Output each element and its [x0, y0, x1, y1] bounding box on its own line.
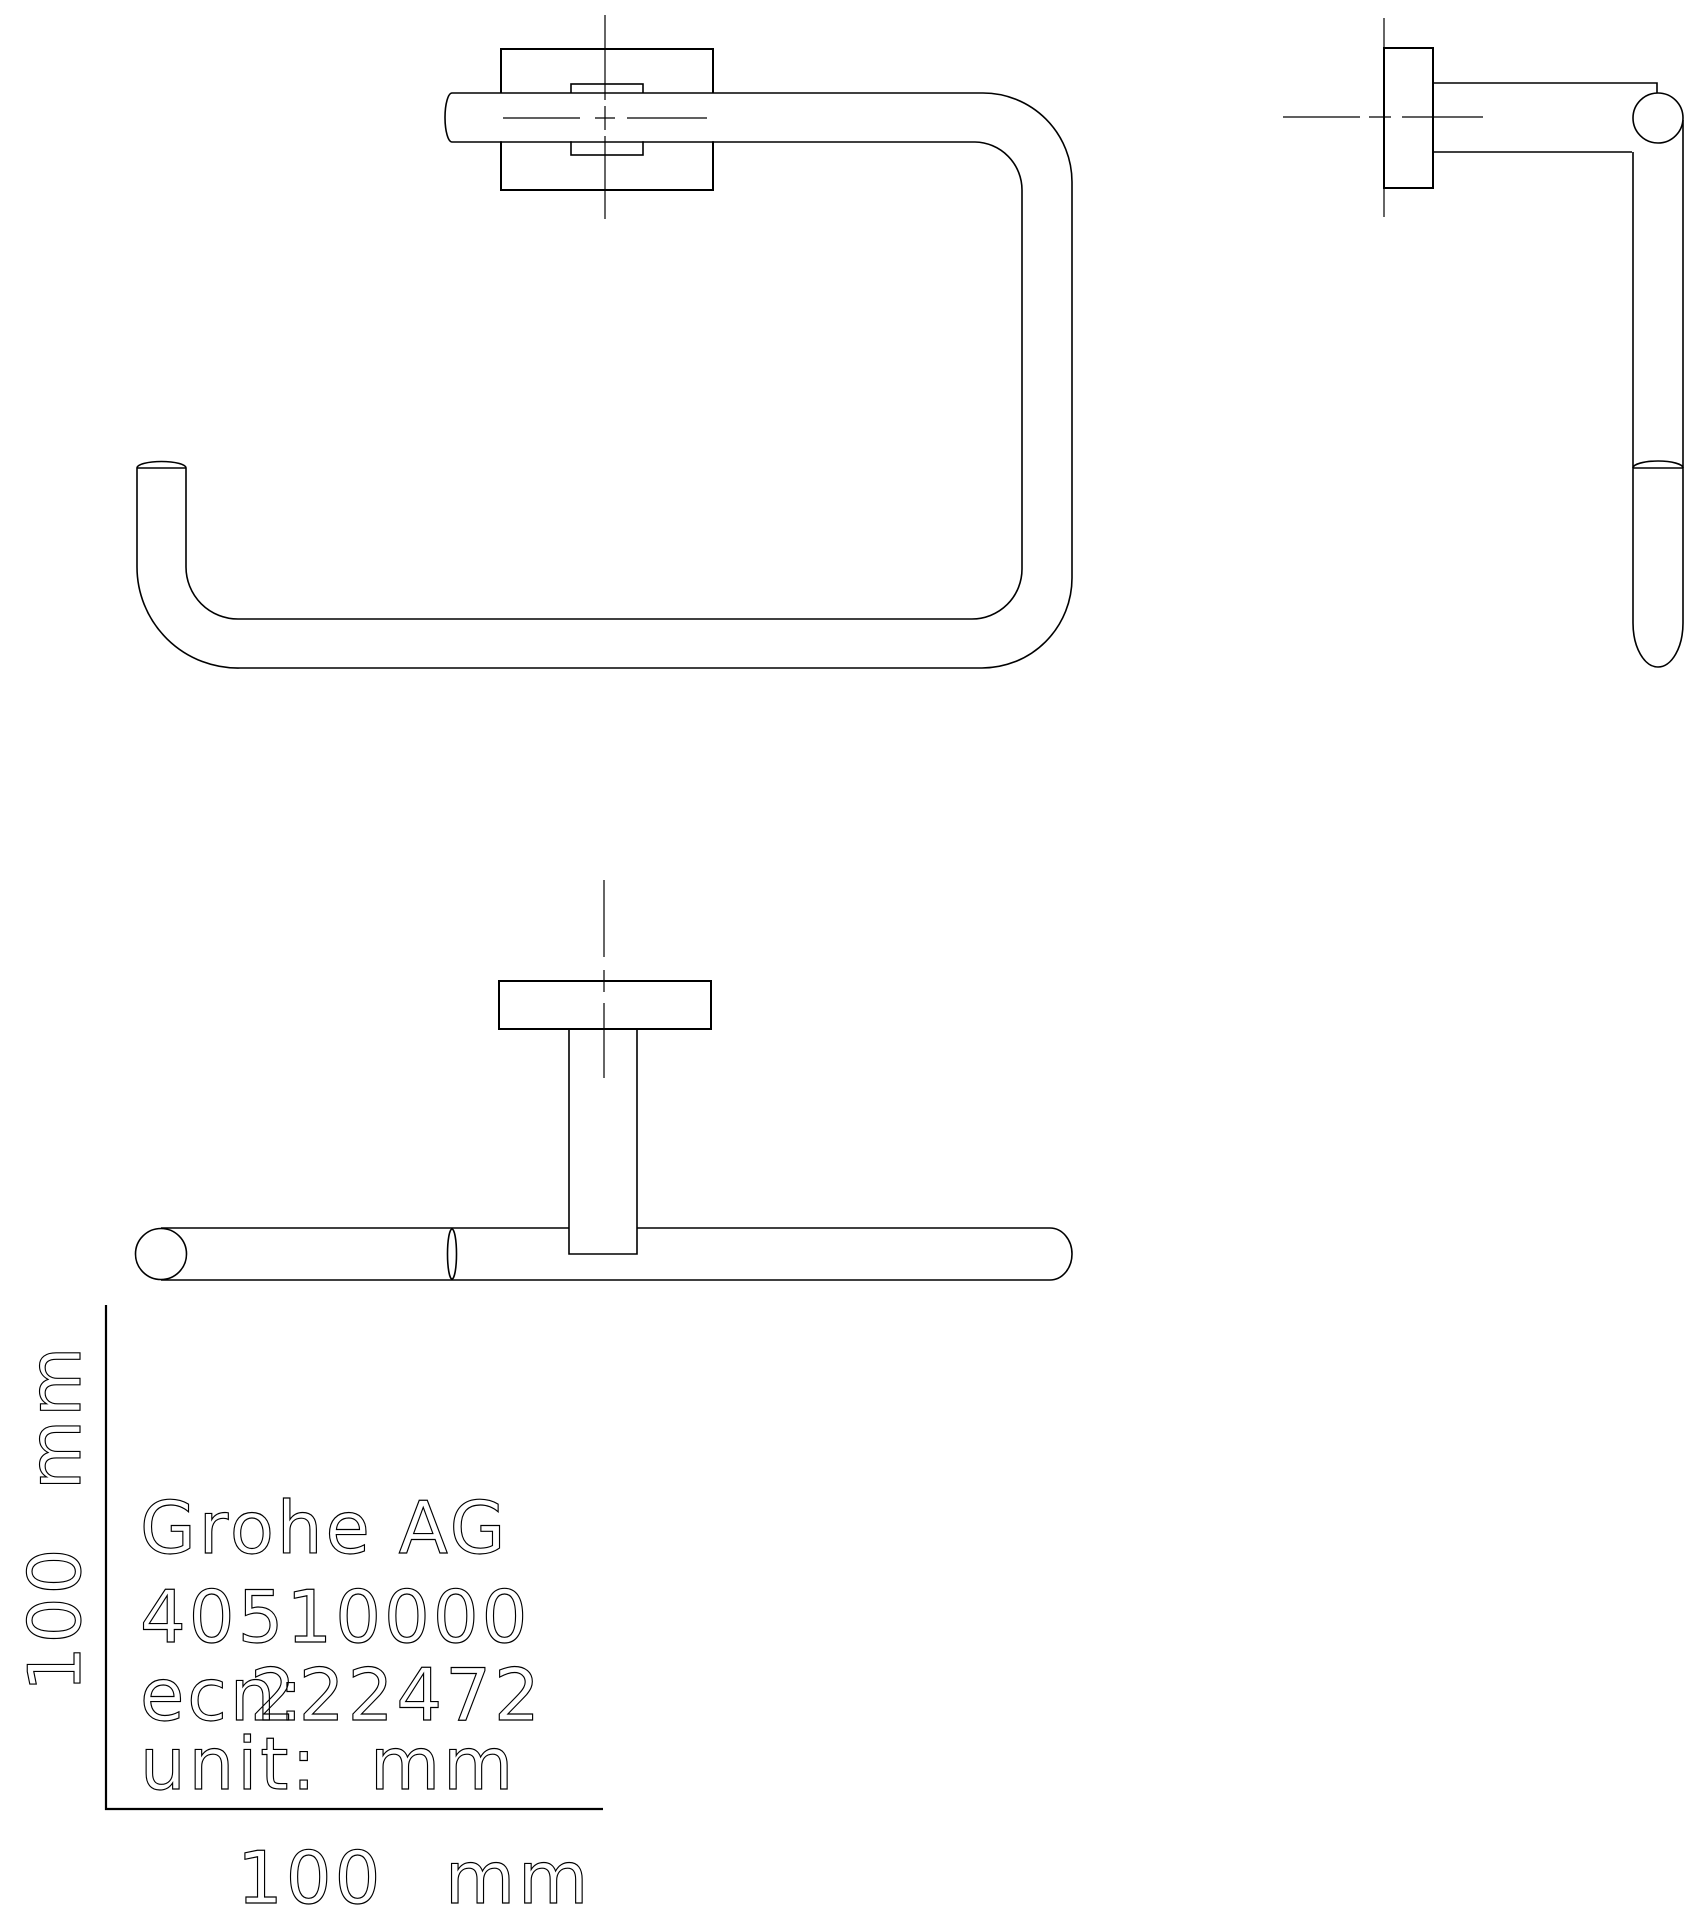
top-leg-circle: [136, 1229, 187, 1280]
top-mount-post: [569, 1029, 637, 1254]
unit-label: unit:: [140, 1722, 319, 1806]
y-scale-value: 100: [13, 1546, 97, 1692]
x-scale-unit: mm: [445, 1836, 591, 1920]
front-bar-body: [453, 93, 983, 141]
top-tube-right-cap: [1050, 1228, 1072, 1280]
front-tube-inner: [186, 142, 1022, 619]
side-view: [1283, 18, 1683, 667]
company-name: Grohe AG: [140, 1486, 508, 1570]
top-wall-plate: [499, 981, 711, 1029]
x-scale-value: 100: [237, 1836, 383, 1920]
front-view: [137, 15, 1072, 668]
technical-drawing: Grohe AG 40510000 ecn: 222472 unit: mm 1…: [0, 0, 1699, 1920]
unit-value: mm: [370, 1722, 516, 1806]
y-scale-unit: mm: [13, 1344, 97, 1490]
scale-axes: Grohe AG 40510000 ecn: 222472 unit: mm 1…: [13, 1305, 603, 1920]
side-tube: [1633, 120, 1683, 623]
top-view: [136, 880, 1073, 1280]
side-wall-plate: [1384, 48, 1433, 188]
product-number: 40510000: [140, 1575, 530, 1659]
top-bar-seam: [448, 1229, 457, 1279]
front-bar-endcap: [445, 93, 452, 142]
side-bottom-cap: [1633, 623, 1683, 667]
front-leg-endcap: [137, 462, 186, 469]
side-leg-endcap: [1633, 461, 1683, 468]
side-bar-circle: [1633, 93, 1683, 143]
